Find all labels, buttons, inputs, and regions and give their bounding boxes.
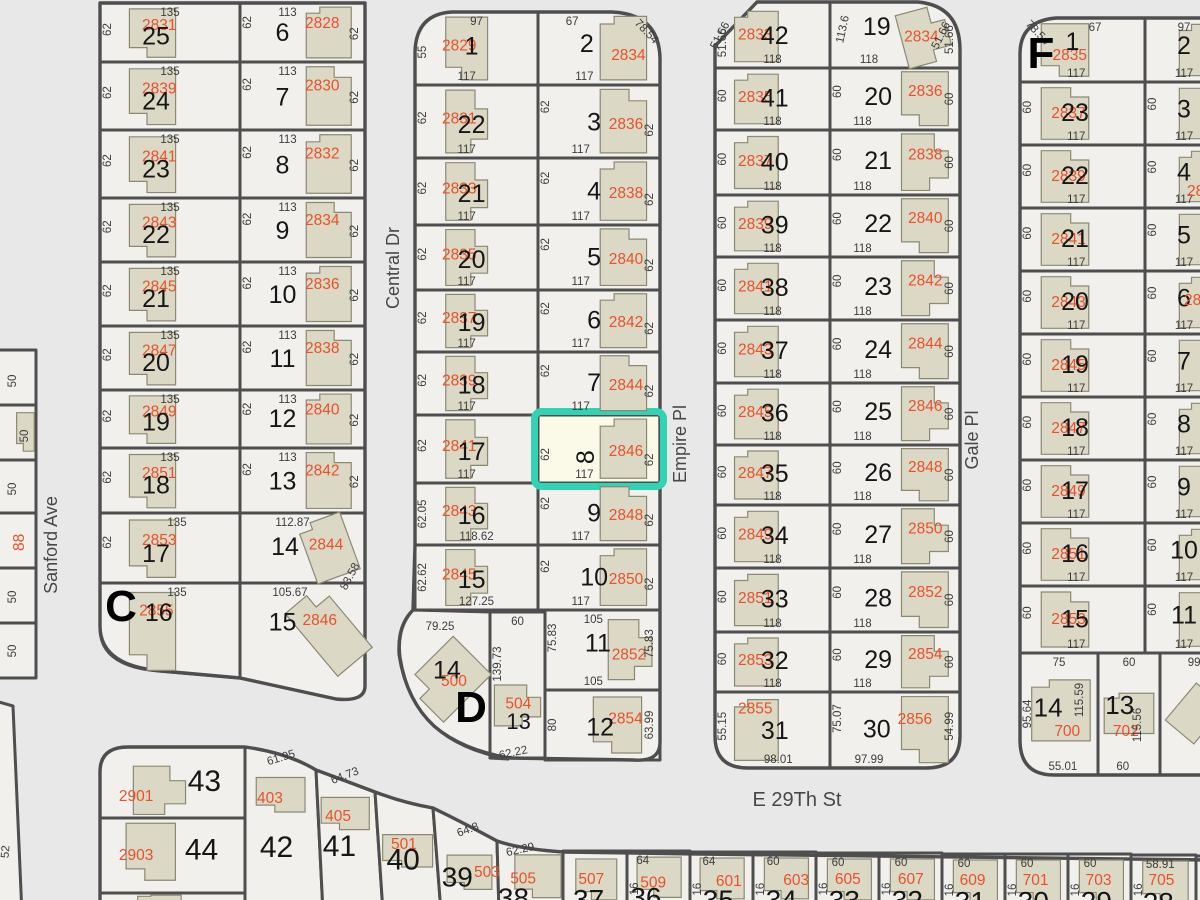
- lot-number: 40: [386, 843, 419, 876]
- dimension-label: 62: [417, 439, 429, 452]
- lot-number: 38: [498, 882, 529, 900]
- dimension-label: 62: [417, 312, 429, 325]
- dimension-label: 62: [242, 78, 254, 91]
- dimension-label: 50: [19, 430, 31, 443]
- dimension-label: 60: [1147, 98, 1159, 111]
- dimension-label: 135: [160, 266, 179, 278]
- dimension-label: 62: [102, 410, 114, 423]
- lot-number: 3: [587, 108, 601, 136]
- address-label: 2828: [305, 15, 339, 32]
- dimension-label: 60: [832, 523, 844, 536]
- dimension-label: 135: [160, 66, 179, 78]
- lot-number: 34: [761, 522, 789, 550]
- lot-number: 18: [1061, 414, 1089, 442]
- lot-number: 20: [142, 349, 170, 377]
- dimension-label: 62: [242, 463, 254, 476]
- block-letter-D: D: [455, 683, 487, 732]
- lot-number: 24: [142, 88, 170, 116]
- dimension-label: 62: [242, 341, 254, 354]
- dimension-label: 117: [572, 531, 590, 543]
- dimension-label: 117: [1067, 68, 1085, 80]
- dimension-label: 62: [102, 284, 114, 297]
- block-letter-C: C: [105, 582, 137, 631]
- lot-number: 8: [1177, 410, 1191, 438]
- lot-number: 31: [955, 886, 986, 900]
- address-label: 2846: [609, 443, 643, 460]
- dimension-label: 60: [717, 153, 729, 166]
- dimension-label: 60: [832, 338, 844, 351]
- address-label: 28: [1184, 292, 1200, 309]
- dimension-label: 117: [1175, 446, 1193, 458]
- dimension-label: 113: [278, 66, 296, 78]
- dimension-label: 60: [1147, 287, 1159, 300]
- dimension-label: 60: [717, 466, 729, 479]
- dimension-label: 62: [102, 154, 114, 167]
- lot-number: 43: [188, 765, 221, 798]
- lot-number: 21: [458, 180, 486, 208]
- parcel-map-viewport[interactable]: 2831251356228392413562284123135622843221…: [0, 0, 1200, 900]
- address-label: 2840: [908, 210, 943, 227]
- address-label: 2842: [305, 462, 339, 479]
- dimension-label: 105: [584, 676, 603, 688]
- street-label-central-dr: Central Dr: [383, 227, 403, 309]
- dimension-label: 118: [763, 181, 781, 193]
- dimension-label: 60: [832, 85, 844, 98]
- dimension-label: 60: [1147, 603, 1159, 616]
- lot-number: 17: [142, 540, 170, 568]
- lot-number: 12: [269, 405, 297, 433]
- lot-number: 33: [761, 586, 789, 614]
- dimension-label: 117: [1175, 257, 1193, 269]
- lot-number: 35: [703, 885, 734, 900]
- dimension-label: 117: [457, 401, 475, 413]
- lot-number: 42: [260, 831, 293, 864]
- address-label: 503: [474, 864, 500, 881]
- lot-number: 38: [761, 274, 789, 302]
- dimension-label: 105: [584, 614, 603, 626]
- dimension-label: 16: [755, 883, 767, 896]
- street-label-e-29th-st: E 29Th St: [753, 789, 842, 811]
- lot-number: 11: [1171, 602, 1197, 630]
- street-label-empire-pl: Empire Pl: [670, 405, 690, 483]
- dimension-label: 60: [832, 461, 844, 474]
- address-label: 2836: [908, 83, 942, 100]
- dimension-label: 118: [853, 678, 871, 690]
- dimension-label: 60: [1021, 858, 1034, 870]
- dimension-label: 16: [881, 883, 893, 896]
- dimension-label: 118: [853, 618, 871, 630]
- lot-number: 10: [1170, 536, 1198, 564]
- dimension-label: 118: [763, 431, 781, 443]
- dimension-label: 60: [1084, 858, 1097, 870]
- dimension-label: 115.56: [1132, 708, 1144, 742]
- address-label: 2838: [908, 146, 942, 163]
- dimension-label: 62: [540, 365, 552, 378]
- dimension-label: 118.62: [459, 531, 493, 543]
- dimension-label: 117: [457, 276, 475, 288]
- dimension-label: 118: [763, 678, 781, 690]
- address-label: 2836: [609, 116, 643, 133]
- address-label: 2846: [908, 398, 942, 415]
- dimension-label: 62: [644, 322, 656, 335]
- dimension-label: 118: [763, 116, 781, 128]
- dimension-label: 117: [572, 276, 590, 288]
- lot-number: 40: [761, 148, 789, 176]
- dimension-label: 99: [1188, 657, 1200, 669]
- dimension-label: 50: [7, 591, 19, 604]
- lot-number: 18: [458, 372, 486, 400]
- lot-number: 32: [892, 885, 923, 900]
- dimension-label: 60: [717, 590, 729, 603]
- lot-number: 30: [1018, 886, 1049, 900]
- dimension-label: 60: [944, 656, 956, 669]
- dimension-label: 113: [278, 330, 296, 342]
- lot-number: 22: [458, 111, 486, 139]
- lot-number: 10: [269, 281, 297, 309]
- dimension-label: 16: [1133, 883, 1145, 896]
- address-label: 2844: [309, 536, 344, 553]
- dimension-label: 60: [717, 405, 729, 418]
- address-label: 88: [11, 534, 28, 551]
- address-label: 2836: [305, 276, 339, 293]
- dimension-label: 62: [349, 91, 361, 104]
- dimension-label: 60: [1022, 416, 1034, 429]
- lot-number: 2: [1177, 32, 1191, 60]
- dimension-label: 62: [417, 374, 429, 387]
- dimension-label: 117: [1067, 509, 1085, 521]
- lot-number: 31: [761, 717, 789, 745]
- dimension-label: 60: [1022, 290, 1034, 303]
- dimension-label: 117: [1175, 320, 1193, 332]
- address-label: 2840: [305, 401, 340, 418]
- lot-number: 1: [465, 32, 479, 60]
- dimension-label: 60: [832, 400, 844, 413]
- dimension-label: 62: [102, 471, 114, 484]
- parcel-south-42[interactable]: [245, 747, 323, 900]
- dimension-label: 117: [1175, 68, 1193, 80]
- lot-number: 27: [864, 521, 892, 549]
- dimension-label: 113: [278, 202, 296, 214]
- lot-number: 12: [586, 714, 614, 742]
- dimension-label: 60: [1147, 224, 1159, 237]
- dimension-label: 62: [644, 193, 656, 206]
- address-label: 2842: [908, 272, 942, 289]
- dimension-label: 117: [572, 144, 590, 156]
- address-label: 2840: [609, 251, 644, 268]
- dimension-label: 117: [572, 338, 590, 350]
- lot-number: 35: [761, 460, 789, 488]
- dimension-label: 117: [457, 71, 475, 83]
- dimension-label: 117: [575, 71, 593, 83]
- dimension-label: 135: [167, 517, 186, 529]
- dimension-label: 60: [832, 275, 844, 288]
- map-canvas[interactable]: 2831251356228392413562284123135622843221…: [0, 0, 1200, 900]
- dimension-label: 79.25: [426, 621, 455, 633]
- lot-number: 17: [458, 438, 486, 466]
- dimension-label: 115.59: [1074, 683, 1086, 717]
- dimension-label: 118: [853, 491, 871, 503]
- building-footprint: [138, 895, 182, 900]
- dimension-label: 118: [853, 243, 871, 255]
- lot-number: 4: [587, 178, 601, 206]
- address-label: 2848: [609, 507, 643, 524]
- dimension-label: 60: [1022, 542, 1034, 555]
- address-label: 2901: [119, 788, 153, 805]
- dimension-label: 113: [278, 394, 296, 406]
- dimension-label: 62.05: [417, 500, 429, 529]
- dimension-label: 60: [1022, 164, 1034, 177]
- dimension-label: 117: [1067, 131, 1085, 143]
- lot-number: 5: [587, 243, 601, 271]
- lot-number: 15: [269, 609, 297, 637]
- dimension-label: 62: [417, 248, 429, 261]
- dimension-label: 62: [540, 448, 552, 461]
- dimension-label: 135: [160, 394, 179, 406]
- dimension-label: 117: [457, 338, 475, 350]
- dimension-label: 50: [7, 375, 19, 388]
- dimension-label: 117: [457, 211, 475, 223]
- dimension-label: 62: [242, 16, 254, 29]
- dimension-label: 118: [763, 243, 781, 255]
- lot-number: 9: [276, 217, 290, 245]
- lot-number: 7: [587, 369, 601, 397]
- dimension-label: 105.67: [272, 587, 307, 599]
- lot-number: 6: [276, 19, 290, 47]
- dimension-label: 64: [703, 856, 716, 868]
- dimension-label: 62: [242, 277, 254, 290]
- dimension-label: 60: [832, 212, 844, 225]
- lot-number: 19: [1061, 351, 1089, 379]
- lot-number: 8: [572, 450, 600, 464]
- dimension-label: 80: [547, 719, 559, 732]
- dimension-label: 118: [853, 181, 871, 193]
- lot-number: 1: [1066, 28, 1080, 56]
- lot-number: 29: [1081, 886, 1112, 900]
- dimension-label: 60: [895, 857, 908, 869]
- dimension-label: 62: [349, 289, 361, 302]
- dimension-label: 75.83: [644, 629, 656, 658]
- dimension-label: 52: [0, 845, 12, 859]
- dimension-label: 16: [629, 882, 641, 895]
- lot-number: 21: [142, 285, 170, 313]
- dimension-label: 60: [944, 282, 956, 295]
- dimension-label: 60: [1147, 413, 1159, 426]
- lot-number: 17: [1061, 477, 1089, 505]
- dimension-label: 60: [832, 648, 844, 661]
- dimension-label: 67: [1089, 22, 1102, 34]
- dimension-label: 98.01: [764, 754, 793, 766]
- address-label: 2846: [303, 612, 337, 629]
- lot-number: 41: [761, 84, 789, 112]
- address-label: 2838: [609, 185, 643, 202]
- lot-number: 9: [587, 499, 601, 527]
- parcel-south-cell18[interactable]: [1196, 856, 1200, 900]
- dimension-label: 62: [242, 213, 254, 226]
- lot-number: 39: [761, 211, 789, 239]
- dimension-label: 113: [278, 452, 296, 464]
- address-label: 403: [257, 790, 283, 807]
- address-label: 2842: [609, 314, 643, 331]
- dimension-label: 60: [717, 527, 729, 540]
- dimension-label: 62: [540, 560, 552, 573]
- dimension-label: 62: [644, 453, 656, 466]
- lot-number: 21: [864, 147, 892, 175]
- dimension-label: 62.62: [417, 563, 429, 592]
- dimension-label: 62: [417, 111, 429, 124]
- lot-number: 19: [458, 309, 486, 337]
- dimension-label: 117: [1067, 639, 1085, 651]
- dimension-label: 118: [853, 431, 871, 443]
- dimension-label: 62: [102, 220, 114, 233]
- dimension-label: 118: [853, 554, 871, 566]
- dimension-label: 60: [1022, 101, 1034, 114]
- dimension-label: 60: [944, 594, 956, 607]
- dimension-label: 62: [102, 86, 114, 99]
- address-label: 700: [1054, 723, 1080, 740]
- dimension-label: 118: [853, 369, 871, 381]
- dimension-label: 62: [540, 172, 552, 185]
- address-label: 2830: [305, 78, 340, 95]
- lot-number: 7: [1177, 347, 1191, 375]
- dimension-label: 117: [1067, 257, 1085, 269]
- dimension-label: 95.64: [1022, 699, 1034, 728]
- dimension-label: 60: [944, 469, 956, 482]
- dimension-label: 62: [242, 403, 254, 416]
- dimension-label: 54.99: [944, 712, 956, 741]
- lot-number: 5: [1177, 221, 1191, 249]
- dimension-label: 60: [832, 148, 844, 161]
- lot-number: 13: [1105, 690, 1134, 720]
- dimension-label: 127.25: [459, 596, 494, 608]
- dimension-label: 16: [818, 883, 830, 896]
- dimension-label: 50: [7, 645, 19, 658]
- dimension-label: 16: [1007, 884, 1019, 897]
- dimension-label: 118: [853, 116, 871, 128]
- dimension-label: 118: [763, 618, 781, 630]
- dimension-label: 55.15: [717, 712, 729, 741]
- lot-number: 23: [142, 156, 170, 184]
- dimension-label: 62: [102, 23, 114, 36]
- lot-number: 24: [864, 336, 892, 364]
- lot-number: 41: [323, 830, 356, 863]
- dimension-label: 75: [1053, 657, 1066, 669]
- lot-number: 33: [829, 885, 860, 900]
- dimension-label: 62: [349, 159, 361, 172]
- lot-number: 13: [269, 468, 297, 496]
- address-label: 405: [325, 808, 351, 825]
- lot-number: 29: [864, 646, 892, 674]
- lot-number: 22: [864, 210, 892, 238]
- dimension-label: 62: [242, 146, 254, 159]
- lot-number: 23: [1061, 99, 1089, 127]
- dimension-label: 75.83: [547, 624, 559, 653]
- lot-number: 32: [761, 647, 789, 675]
- dimension-label: 113: [278, 266, 296, 278]
- lot-number: 21: [1061, 225, 1089, 253]
- dimension-label: 63.99: [644, 711, 656, 740]
- dimension-label: 118: [860, 54, 878, 66]
- address-label: 2852: [612, 647, 646, 664]
- dimension-label: 117: [575, 469, 593, 481]
- dimension-label: 118: [853, 306, 871, 318]
- dimension-label: 16: [1070, 884, 1082, 897]
- dimension-label: 118: [763, 369, 781, 381]
- lot-number: 25: [864, 398, 892, 426]
- lot-number: 14: [1034, 692, 1063, 722]
- address-label: 2856: [898, 711, 932, 728]
- dimension-label: 60: [944, 93, 956, 106]
- dimension-label: 135: [167, 587, 186, 599]
- dimension-label: 60: [1022, 353, 1034, 366]
- lot-number: 20: [1061, 288, 1089, 316]
- dimension-label: 62: [540, 238, 552, 251]
- dimension-label: 117: [1175, 131, 1193, 143]
- dimension-label: 117: [457, 469, 475, 481]
- dimension-label: 117: [1067, 446, 1085, 458]
- dimension-label: 60: [1022, 227, 1034, 240]
- dimension-label: 60: [1022, 479, 1034, 492]
- lot-number: 3: [1177, 95, 1191, 123]
- dimension-label: 62: [540, 101, 552, 114]
- dimension-label: 55: [417, 46, 429, 59]
- lot-number: 23: [864, 273, 892, 301]
- address-label: 2838: [305, 340, 339, 357]
- lot-number: 9: [1177, 473, 1191, 501]
- lot-number: 25: [142, 22, 170, 50]
- dimension-label: 135: [160, 134, 179, 146]
- dimension-label: 60: [944, 345, 956, 358]
- dimension-label: 62: [349, 414, 361, 427]
- lot-number: 11: [585, 630, 611, 658]
- dimension-label: 118: [763, 54, 781, 66]
- dimension-label: 113: [278, 134, 296, 146]
- lot-number: 6: [587, 306, 601, 334]
- lot-number: 44: [185, 833, 218, 866]
- dimension-label: 60: [944, 156, 956, 169]
- dimension-label: 58.91: [1146, 859, 1175, 871]
- lot-number: 18: [142, 472, 170, 500]
- lot-number: 14: [433, 657, 461, 685]
- dimension-label: 60: [944, 408, 956, 421]
- dimension-label: 117: [1175, 572, 1193, 584]
- dimension-label: 60: [717, 217, 729, 230]
- lot-number: 39: [442, 862, 473, 893]
- address-label: 2852: [908, 584, 942, 601]
- lot-number: 16: [145, 599, 173, 627]
- lot-number: 42: [761, 22, 789, 50]
- lot-number: 26: [864, 459, 892, 487]
- lot-number: 8: [276, 152, 290, 180]
- dimension-label: 118: [763, 306, 781, 318]
- dimension-label: 117: [572, 211, 590, 223]
- dimension-label: 62: [644, 124, 656, 137]
- dimension-label: 117: [572, 596, 590, 608]
- dimension-label: 60: [1022, 606, 1034, 619]
- dimension-label: 117: [1067, 194, 1085, 206]
- dimension-label: 62: [349, 353, 361, 366]
- dimension-label: 16: [692, 883, 704, 896]
- dimension-label: 60: [717, 279, 729, 292]
- dimension-label: 60: [1147, 476, 1159, 489]
- lot-number: 28: [864, 584, 892, 612]
- address-label: 2854: [908, 646, 943, 663]
- dimension-label: 117: [1175, 509, 1193, 521]
- dimension-label: 62: [349, 225, 361, 238]
- address-label: 2844: [609, 377, 644, 394]
- dimension-label: 113: [278, 7, 296, 19]
- dimension-label: 60: [717, 342, 729, 355]
- address-label: 2850: [609, 571, 644, 588]
